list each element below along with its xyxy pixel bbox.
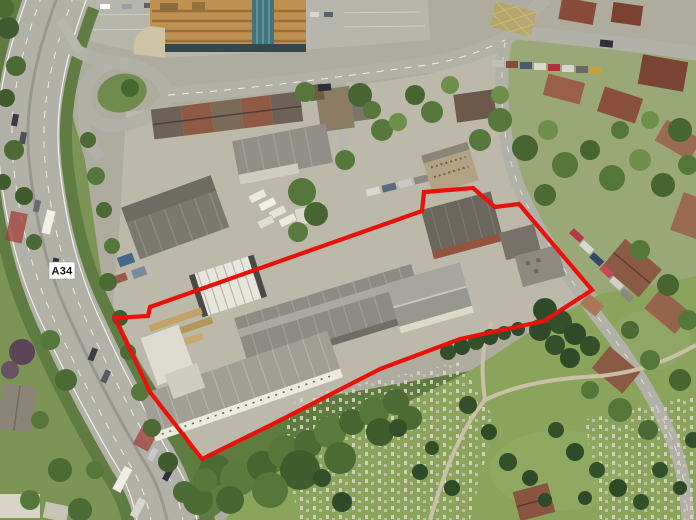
aerial-photo: A34 xyxy=(0,0,696,520)
route-badge-a34: A34 xyxy=(49,262,75,279)
route-badge-label: A34 xyxy=(51,266,73,278)
